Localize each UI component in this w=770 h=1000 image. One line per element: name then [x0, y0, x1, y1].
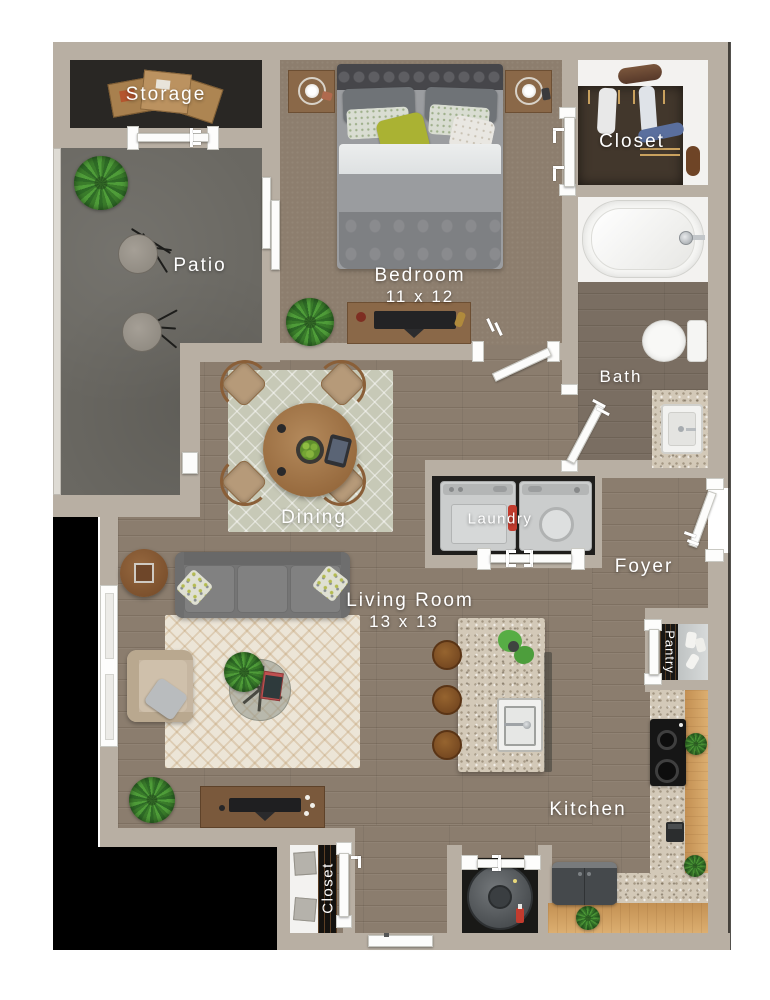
wall-wh-closet-left	[447, 845, 462, 933]
stove-burner	[657, 730, 677, 750]
wall-dining-top	[180, 343, 280, 362]
closet-bin	[293, 897, 317, 922]
bifold-hinge	[524, 564, 531, 567]
wall-right-upper	[708, 60, 730, 488]
dining-chair	[222, 458, 268, 504]
patio-sliding-door	[271, 200, 280, 270]
door-jamb	[705, 549, 724, 562]
lamp	[305, 84, 319, 98]
spray-bottle	[516, 908, 524, 923]
tv-console	[200, 786, 325, 828]
kitchen-counter-bottom	[617, 873, 708, 903]
door-hinge	[358, 856, 361, 868]
refrigerator	[552, 862, 617, 905]
bifold-hinge	[498, 855, 501, 871]
bedroom-closet-door	[564, 117, 575, 187]
door-hinge	[553, 131, 556, 143]
speaker-dot	[219, 805, 225, 811]
spray-bottle-cap	[518, 904, 522, 909]
patio-label: Patio	[173, 255, 226, 277]
island-edge-shadow	[544, 652, 552, 772]
island-sink-basin	[504, 706, 536, 746]
water-heater-cap	[488, 885, 512, 909]
wall-top	[53, 42, 730, 60]
bifold-hinge	[509, 550, 516, 553]
dining-wall-vent	[182, 452, 198, 474]
wall-patio-bottom	[53, 495, 200, 517]
table-decor-dot	[277, 424, 286, 433]
pantry-door	[649, 629, 659, 675]
console-decor	[304, 811, 309, 816]
patio-chair	[122, 310, 166, 354]
hanging-garment	[597, 88, 617, 135]
counter-plant	[685, 733, 707, 755]
lamp	[522, 84, 536, 98]
door-jamb	[571, 548, 585, 570]
door-jamb	[561, 384, 578, 395]
door-handle	[193, 130, 201, 133]
storage-label: Storage	[126, 84, 207, 106]
water-heater-closet-door	[477, 859, 525, 868]
door-jamb	[524, 855, 541, 870]
folded-sheet	[339, 144, 501, 178]
speaker-dot	[211, 797, 217, 803]
coffee-table-plant	[224, 652, 264, 692]
console-decor	[310, 803, 315, 808]
bed	[337, 64, 503, 269]
bar-stool	[432, 685, 462, 715]
door-jamb	[477, 548, 491, 570]
kitchen-cabinet-bottom	[548, 903, 708, 933]
bedroom-plant	[286, 298, 334, 346]
laundry-label: Laundry	[468, 511, 533, 528]
foyer-label: Foyer	[615, 556, 674, 578]
rear-door-mark	[384, 933, 389, 937]
rear-door	[368, 935, 433, 947]
living-tv	[229, 798, 301, 812]
bifold-hinge	[492, 855, 498, 858]
armchair	[127, 650, 193, 722]
door-handle	[193, 142, 201, 145]
bath-faucet-handle	[686, 428, 696, 431]
sofa	[175, 552, 350, 618]
island-faucet-base	[523, 721, 531, 729]
stove-burner	[655, 759, 679, 783]
headboard	[337, 64, 503, 90]
bifold-hinge	[524, 550, 531, 553]
bifold-hinge	[492, 868, 498, 871]
sofa-cushion	[237, 565, 288, 613]
patio-sliding-door	[262, 177, 271, 249]
door-hinge	[553, 169, 556, 181]
console-decor	[305, 795, 310, 800]
green-apples	[300, 440, 320, 460]
wall-closet-bath-divider	[578, 185, 708, 197]
shoes	[686, 146, 700, 176]
tub-faucet-pipe	[691, 235, 705, 240]
bedroom-dimensions: 11 x 12	[386, 287, 455, 307]
wall-right-edge	[728, 42, 731, 950]
bifold-hinge	[509, 564, 516, 567]
pantry-label: Pantry	[663, 630, 678, 674]
closet-bin	[293, 851, 317, 875]
water-heater-valve	[513, 879, 517, 883]
toilet-bowl	[642, 320, 686, 362]
wall-bedroom-bottom	[262, 343, 483, 360]
dining-chair	[318, 362, 364, 408]
dining-chair	[222, 362, 268, 408]
bar-stool	[432, 730, 462, 760]
coffee-maker	[666, 822, 684, 842]
entry-closet-label: Closet	[320, 862, 337, 914]
living-room-window	[100, 585, 118, 747]
bar-stool	[432, 640, 462, 670]
wall-bottom	[277, 933, 730, 950]
tub-faucet	[679, 231, 693, 245]
dresser-knob	[356, 312, 366, 322]
bedroom-closet-label: Closet	[599, 131, 665, 153]
table-decor-dot	[277, 467, 286, 476]
books	[263, 675, 283, 699]
floor-plan: Storage Patio Bedroom 11 x 12 Closet Bat…	[0, 0, 770, 1000]
island-plant-pot	[508, 641, 519, 652]
patterned-duvet	[339, 212, 501, 269]
door-jamb	[706, 478, 724, 490]
kitchen-label: Kitchen	[549, 799, 626, 821]
living-room-dimensions: 13 x 13	[369, 612, 439, 632]
side-table-tray	[134, 563, 154, 583]
wall-dining-west	[180, 343, 200, 517]
bath-label: Bath	[600, 367, 643, 387]
bedroom-label: Bedroom	[374, 265, 465, 287]
patio-chair	[118, 232, 162, 276]
stove-knob	[679, 723, 683, 727]
wall-right-lower	[708, 553, 730, 950]
patio-railing	[53, 148, 61, 495]
dining-label: Dining	[281, 507, 347, 529]
toilet-tank	[687, 320, 707, 362]
bath-faucet	[678, 426, 684, 432]
entry-closet-door	[339, 853, 349, 917]
wall-entry-closet-left	[277, 845, 290, 933]
counter-plant	[684, 855, 706, 877]
living-room-plant	[129, 777, 175, 823]
bedroom-tv	[374, 311, 456, 329]
storage-door	[137, 133, 209, 142]
door-jamb	[461, 855, 478, 870]
living-tv-stand	[255, 812, 275, 821]
counter-plant	[576, 906, 600, 930]
patio-plant	[74, 156, 128, 210]
living-room-label: Living Room	[346, 590, 474, 612]
door-jamb	[472, 341, 484, 362]
